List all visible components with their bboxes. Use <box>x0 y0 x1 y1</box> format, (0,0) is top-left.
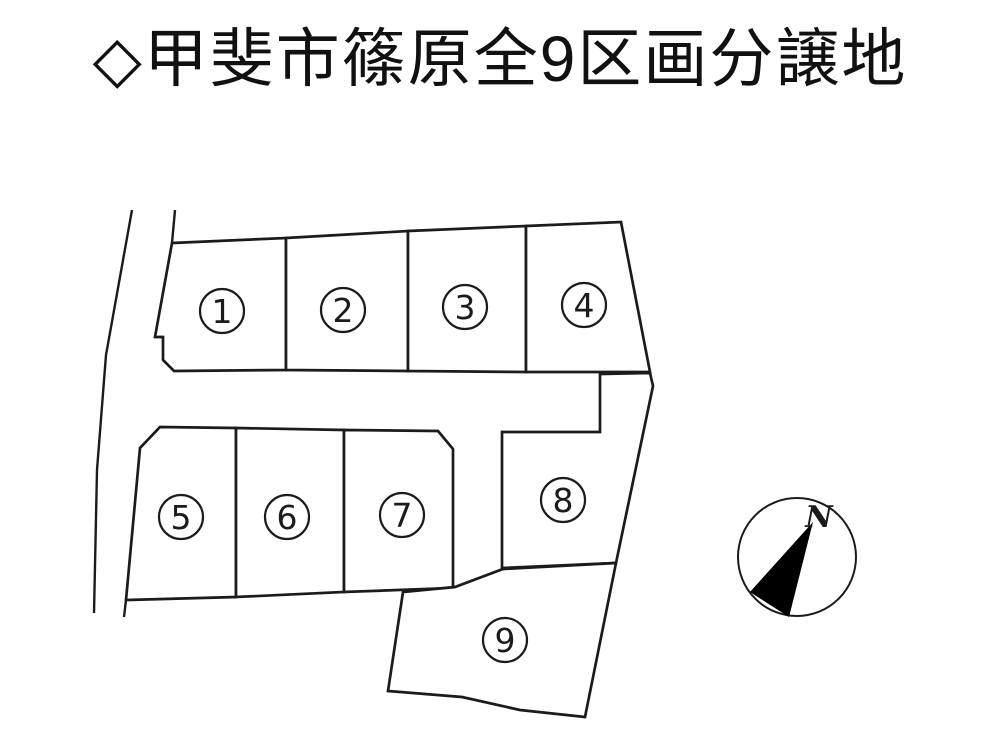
left-road-outer-line <box>94 210 132 613</box>
lot-map-svg: 123456789N <box>0 0 1000 750</box>
lot-8-number-text: 8 <box>553 481 574 520</box>
lot-2-label: 2 <box>321 288 365 332</box>
subdivision-map-page: ◇甲斐市篠原全9区画分譲地 123456789N <box>0 0 1000 750</box>
lot-6-number-text: 6 <box>277 498 298 537</box>
lot-6-label: 6 <box>265 495 309 539</box>
lot-2-number-text: 2 <box>333 291 354 330</box>
lot-8-label: 8 <box>541 478 585 522</box>
lot-9-label: 9 <box>483 618 527 662</box>
compass: N <box>738 498 856 617</box>
lot-3-label: 3 <box>443 285 487 329</box>
lot-7-number-text: 7 <box>392 496 413 535</box>
lot-9-number-text: 9 <box>495 621 516 660</box>
lot5-left-edge-tail <box>124 600 126 617</box>
lot-4-number-text: 4 <box>574 286 595 325</box>
lot-3-number-text: 3 <box>455 288 476 327</box>
lot-1-label: 1 <box>200 289 244 333</box>
left-road-inner-line <box>172 210 175 243</box>
lot-7-label: 7 <box>380 493 424 537</box>
lot-4-label: 4 <box>562 283 606 327</box>
lot-5-label: 5 <box>159 495 203 539</box>
lot-8-parcel <box>502 373 653 568</box>
lot-5-number-text: 5 <box>171 498 192 537</box>
lot-1-number-text: 1 <box>212 292 233 331</box>
compass-north-label: N <box>804 500 834 535</box>
